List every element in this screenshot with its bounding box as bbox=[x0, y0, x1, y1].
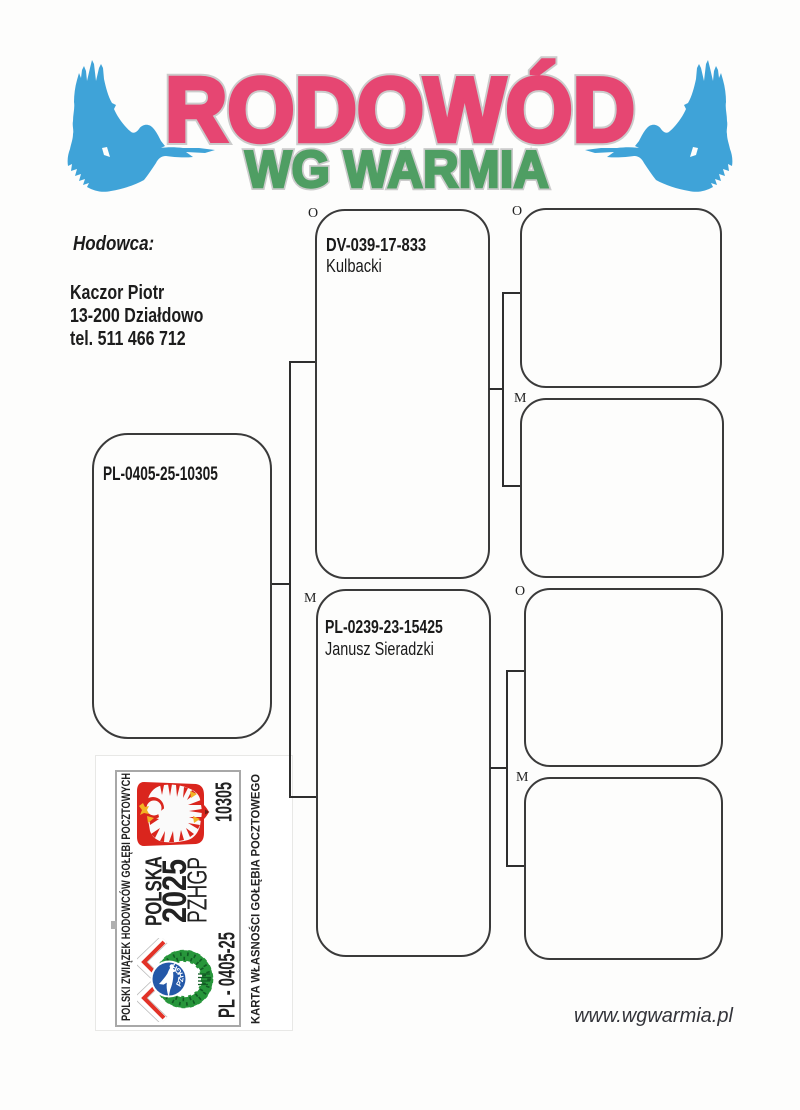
svg-text:PL - 0405-25: PL - 0405-25 bbox=[214, 932, 240, 1018]
svg-text:PZHGP: PZHGP bbox=[181, 857, 212, 923]
svg-text:KARTA WŁASNOŚCI GOŁĘBIA POC: KARTA WŁASNOŚCI GOŁĘBIA POCZTOWEGO bbox=[247, 774, 262, 1024]
svg-text:POLSKI ZWIĄZEK HODOWCÓW GOŁĘBI: POLSKI ZWIĄZEK HODOWCÓW GOŁĘBI POCZTOWYC… bbox=[118, 773, 133, 1021]
svg-text:WG WARMIA: WG WARMIA bbox=[245, 141, 549, 199]
svg-text:10305: 10305 bbox=[211, 782, 237, 822]
